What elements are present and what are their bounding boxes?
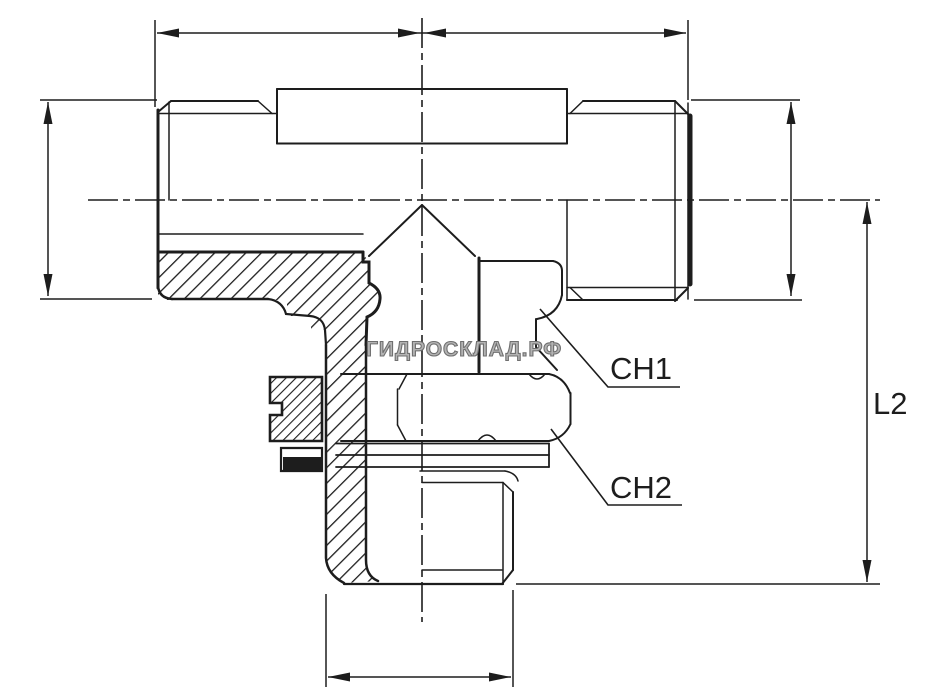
seal-washer-rubber: [283, 457, 322, 470]
technical-drawing-page: ГИДРОСКЛАД.РФ CH1 CH2 L2: [0, 0, 930, 691]
ch1-label: CH1: [610, 351, 672, 386]
tee-fitting-section-drawing: ГИДРОСКЛАД.РФ CH1 CH2 L2: [0, 0, 930, 691]
l2-label: L2: [873, 386, 907, 421]
watermark-text: ГИДРОСКЛАД.РФ: [366, 338, 562, 361]
ch2-label: CH2: [610, 470, 672, 505]
